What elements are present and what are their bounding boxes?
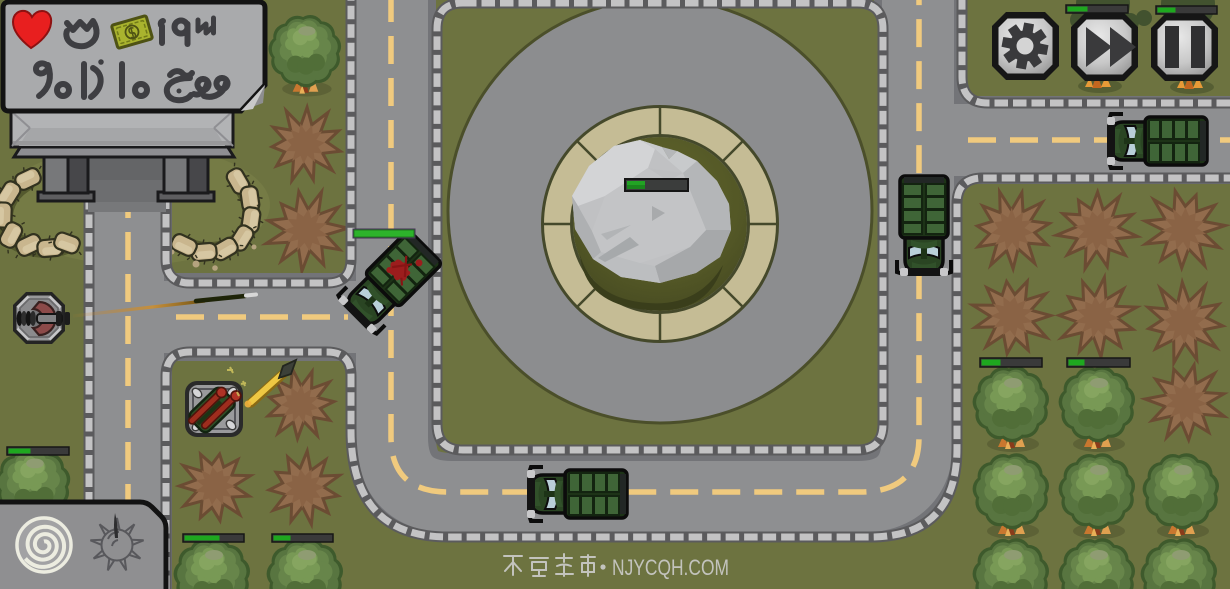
svg-text:NJYCQH.COM: NJYCQH.COM: [612, 555, 729, 580]
